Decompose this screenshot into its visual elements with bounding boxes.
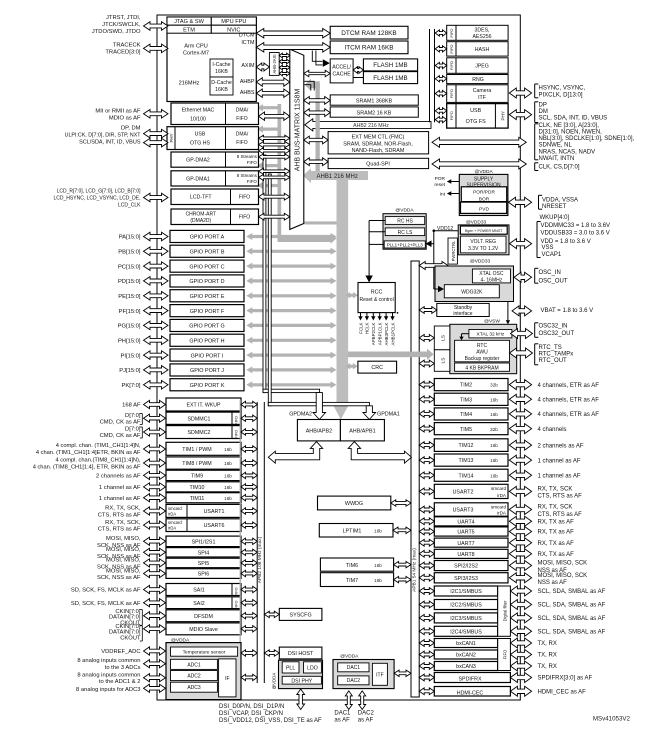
svg-text:XTAL OSC: XTAL OSC	[479, 271, 504, 277]
svg-text:ETM: ETM	[183, 27, 195, 33]
svg-text:GPIO PORT F: GPIO PORT F	[190, 309, 225, 315]
svg-text:JTRST, JTDI,: JTRST, JTDI,	[106, 15, 141, 21]
svg-text:CKOUT: CKOUT	[120, 635, 141, 641]
svg-text:16b: 16b	[224, 485, 232, 490]
svg-text:SDMMC1: SDMMC1	[188, 416, 211, 422]
svg-text:irDA: irDA	[497, 493, 507, 498]
svg-text:I2C1/SMBUS: I2C1/SMBUS	[450, 589, 482, 595]
svg-text:FIFO: FIFO	[503, 649, 508, 659]
svg-text:UART4: UART4	[457, 519, 474, 525]
svg-text:NBL[3:0], SDCLKE[1:0], SDNE[1:: NBL[3:0], SDCLKE[1:0], SDNE[1:0],	[539, 136, 635, 142]
svg-text:D[31:0], NOEN, NWEN,: D[31:0], NOEN, NWEN,	[539, 130, 603, 136]
svg-text:HCLK: HCLK	[365, 322, 370, 334]
svg-text:CMD, CK as AF: CMD, CK as AF	[100, 420, 141, 426]
svg-text:FIFO: FIFO	[449, 111, 454, 120]
svg-text:4 compl. chan. (TIM1_CH1[1:4]N: 4 compl. chan. (TIM1_CH1[1:4]N,	[56, 443, 141, 449]
svg-text:RX, TX, SCK: RX, TX, SCK	[538, 505, 573, 511]
svg-text:ADC2: ADC2	[187, 674, 201, 680]
svg-text:168 AF: 168 AF	[122, 403, 141, 409]
svg-text:SCL/SDA, INT, ID, VBUS: SCL/SDA, INT, ID, VBUS	[79, 140, 141, 146]
svg-text:SUPPLY: SUPPLY	[474, 177, 494, 183]
svg-text:DTCM: DTCM	[239, 33, 255, 39]
svg-text:ADC1: ADC1	[187, 662, 201, 668]
svg-text:SD, SCK, FS, MCLK as AF: SD, SCK, FS, MCLK as AF	[71, 588, 141, 594]
svg-text:SPI6: SPI6	[198, 572, 210, 578]
svg-text:Int: Int	[440, 192, 446, 198]
svg-text:RX, TX as AF: RX, TX as AF	[538, 520, 575, 526]
svg-text:1 channel as AF: 1 channel as AF	[99, 485, 141, 491]
svg-text:DAC2: DAC2	[358, 711, 375, 717]
svg-text:GPDMA1: GPDMA1	[377, 412, 400, 418]
svg-text:MOSI, MISO,: MOSI, MISO,	[106, 558, 141, 564]
svg-text:SCL, SDA, SMBAL as AF: SCL, SDA, SMBAL as AF	[538, 603, 606, 609]
svg-text:LCD_R[7:0], LCD_G[7:0], LCD_B[: LCD_R[7:0], LCD_G[7:0], LCD_B[7:0]	[57, 189, 142, 195]
svg-text:APB2 108 MHz (max): APB2 108 MHz (max)	[257, 536, 263, 583]
svg-text:32b: 32b	[490, 383, 498, 388]
svg-text:to the ADC1 & 2: to the ADC1 & 2	[99, 679, 141, 685]
svg-text:SPDIFRX: SPDIFRX	[459, 677, 482, 683]
svg-text:DAC1: DAC1	[347, 665, 361, 671]
svg-text:LCD_HSYNC, LCD_VSYNC, LCD_DE,: LCD_HSYNC, LCD_VSYNC, LCD_DE,	[54, 196, 141, 202]
svg-text:1 channel as AF: 1 channel as AF	[99, 496, 141, 502]
svg-text:AXIM: AXIM	[241, 63, 255, 69]
svg-text:16b: 16b	[224, 461, 232, 466]
svg-text:RNG: RNG	[472, 77, 484, 83]
svg-text:ADC3: ADC3	[187, 685, 201, 691]
svg-text:CTS, RTS as AF: CTS, RTS as AF	[98, 527, 141, 533]
svg-text:GPIO PORT J: GPIO PORT J	[190, 368, 224, 374]
svg-text:I2C2/SMBUS: I2C2/SMBUS	[450, 603, 482, 609]
svg-text:RX, TX, SCK,: RX, TX, SCK,	[105, 506, 141, 512]
svg-text:smcard: smcard	[168, 520, 182, 525]
svg-text:Temperature sensor: Temperature sensor	[183, 650, 226, 656]
svg-text:ITF: ITF	[478, 95, 486, 101]
svg-text:TIM8 / PWM: TIM8 / PWM	[182, 461, 211, 467]
svg-text:8 Streams: 8 Streams	[237, 173, 258, 178]
svg-text:CMD, CK as AF: CMD, CK as AF	[100, 433, 141, 439]
svg-text:GPIO PORT A: GPIO PORT A	[190, 235, 225, 241]
svg-text:FIFO: FIFO	[239, 195, 250, 201]
svg-text:VOLT. REG: VOLT. REG	[470, 239, 496, 245]
svg-text:smcard: smcard	[491, 486, 507, 491]
svg-text:bxCAN2: bxCAN2	[456, 653, 476, 659]
svg-text:16b: 16b	[374, 578, 382, 583]
svg-text:216MHz: 216MHz	[179, 81, 200, 87]
svg-text:FLASH 1MB: FLASH 1MB	[373, 62, 407, 69]
svg-text:FIFO: FIFO	[247, 179, 258, 184]
svg-text:SCL, SDA, INT, ID, VBUS: SCL, SDA, INT, ID, VBUS	[539, 115, 608, 121]
svg-text:SRAM2 16 KB: SRAM2 16 KB	[357, 110, 392, 116]
svg-text:PJ[15:0]: PJ[15:0]	[119, 368, 141, 374]
svg-text:VDDUSB33 = 3.0 to 3.6 V: VDDUSB33 = 3.0 to 3.6 V	[541, 231, 610, 237]
svg-text:4- 16MHz: 4- 16MHz	[481, 277, 503, 283]
svg-text:VSS: VSS	[542, 245, 554, 251]
svg-text:AHB/APB1: AHB/APB1	[349, 429, 375, 435]
svg-text:SAI2: SAI2	[193, 601, 205, 607]
svg-text:RC HS: RC HS	[397, 219, 413, 225]
svg-text:EXT IT. WKUP: EXT IT. WKUP	[187, 403, 221, 409]
svg-text:XTAL 32 kHz: XTAL 32 kHz	[477, 332, 505, 338]
svg-text:VDDREF_ADC: VDDREF_ADC	[101, 649, 140, 655]
svg-text:PF[15:0]: PF[15:0]	[119, 309, 141, 315]
svg-text:AHBP: AHBP	[240, 79, 255, 85]
svg-text:PLL1+PLL2+PLL3: PLL1+PLL2+PLL3	[387, 242, 423, 247]
svg-text:MDIO Slave: MDIO Slave	[189, 627, 218, 633]
svg-text:PHY: PHY	[501, 111, 506, 120]
svg-text:16b: 16b	[374, 563, 382, 568]
svg-text:USART6: USART6	[204, 523, 225, 529]
svg-text:TIM13: TIM13	[458, 458, 473, 464]
svg-text:MOSI, MISO,: MOSI, MISO,	[106, 547, 141, 553]
svg-text:CLK, NE [3:0], A[23:0],: CLK, NE [3:0], A[23:0],	[539, 123, 600, 129]
svg-text:16KB: 16KB	[215, 87, 228, 93]
svg-text:CTS, RTS as AF: CTS, RTS as AF	[98, 512, 141, 518]
svg-text:MOSI, MISO,: MOSI, MISO,	[106, 536, 141, 542]
svg-text:CLK, CS,D[7:0]: CLK, CS,D[7:0]	[539, 164, 580, 170]
svg-text:4 KB BKPRAM: 4 KB BKPRAM	[465, 365, 498, 371]
svg-text:LS: LS	[441, 358, 447, 364]
svg-text:TIM7: TIM7	[346, 578, 358, 584]
svg-text:AHB1PCLK: AHB1PCLK	[390, 322, 395, 345]
svg-text:16b: 16b	[490, 412, 498, 417]
svg-text:DSI_VCAP, DSI_CKP/N: DSI_VCAP, DSI_CKP/N	[219, 711, 283, 717]
svg-text:reset: reset	[434, 182, 445, 188]
svg-text:Backup register: Backup register	[465, 356, 500, 362]
svg-text:FIFO: FIFO	[236, 140, 247, 146]
svg-text:FIFO: FIFO	[235, 416, 239, 425]
svg-text:TX, RX: TX, RX	[538, 664, 557, 670]
svg-text:EXT MEM CTL (FMC): EXT MEM CTL (FMC)	[352, 135, 405, 141]
svg-text:ITF: ITF	[376, 673, 384, 679]
svg-text:SPI5: SPI5	[198, 561, 210, 567]
svg-text:SDNWE, NL: SDNWE, NL	[539, 143, 573, 149]
svg-text:LCD_CLK: LCD_CLK	[118, 203, 141, 209]
svg-text:APBP1CLK: APBP1CLK	[378, 322, 383, 345]
svg-text:PH[15:0]: PH[15:0]	[118, 339, 141, 345]
svg-text:RTC: RTC	[477, 343, 488, 349]
svg-text:16b: 16b	[490, 458, 498, 463]
svg-text:4 chan. (TIM8_CH1[1:4], ETR, B: 4 chan. (TIM8_CH1[1:4], ETR, BKIN as AF	[33, 464, 141, 470]
svg-text:GPIO PORT B: GPIO PORT B	[190, 250, 225, 256]
svg-text:1 channel as AF: 1 channel as AF	[538, 473, 581, 479]
svg-text:NWAIT, INTN: NWAIT, INTN	[539, 156, 575, 162]
svg-text:@VDD33: @VDD33	[470, 258, 491, 264]
svg-text:smcard: smcard	[491, 504, 507, 509]
svg-text:NSS as AF: NSS as AF	[538, 580, 568, 586]
svg-text:MSv41053V2: MSv41053V2	[593, 716, 631, 723]
svg-text:LPTIM1: LPTIM1	[343, 529, 362, 535]
svg-text:TIM4: TIM4	[460, 412, 472, 418]
svg-text:JTCK/SWCLK,: JTCK/SWCLK,	[102, 22, 141, 28]
svg-text:FIFO: FIFO	[235, 587, 239, 596]
svg-text:SCK, NSS as AF: SCK, NSS as AF	[97, 575, 141, 581]
svg-text:MDIO as AF: MDIO as AF	[109, 116, 141, 122]
svg-text:4 channels, ETR as AF: 4 channels, ETR as AF	[538, 398, 600, 404]
svg-text:MOSI, MISO,: MOSI, MISO,	[106, 568, 141, 574]
svg-text:bxCAN3: bxCAN3	[456, 664, 476, 670]
svg-text:WDG32K: WDG32K	[461, 290, 483, 296]
svg-text:TIM14: TIM14	[458, 473, 473, 479]
svg-text:irDA: irDA	[497, 511, 507, 516]
svg-text:RCC: RCC	[371, 290, 383, 296]
svg-text:DP, DM: DP, DM	[121, 126, 141, 132]
svg-text:APBP2CLK: APBP2CLK	[371, 322, 376, 345]
svg-text:LCD-TFT: LCD-TFT	[190, 195, 212, 201]
svg-text:FIFO: FIFO	[235, 601, 239, 610]
svg-text:GPIO PORT C: GPIO PORT C	[189, 264, 224, 270]
svg-text:Reset & control: Reset & control	[360, 297, 394, 303]
svg-text:FIFO: FIFO	[239, 215, 250, 221]
svg-text:DM: DM	[539, 109, 548, 115]
svg-text:SPDIFRX[3:0] as AF: SPDIFRX[3:0] as AF	[538, 676, 593, 682]
svg-text:DSI_VDD12, DSI_VSS, DSI_TE as: DSI_VDD12, DSI_VSS, DSI_TE as AF	[219, 718, 322, 724]
svg-text:16b: 16b	[374, 529, 382, 534]
svg-text:HSYNC, VSYNC,: HSYNC, VSYNC,	[539, 86, 586, 92]
svg-text:@VDDA: @VDDA	[272, 673, 277, 690]
svg-text:SRAM, SDRAM, NOR-Flash,: SRAM, SDRAM, NOR-Flash,	[343, 141, 413, 147]
svg-text:RC LS: RC LS	[398, 230, 413, 236]
svg-text:HASH: HASH	[475, 47, 490, 53]
svg-text:16b: 16b	[490, 443, 498, 448]
svg-text:GPDMA2: GPDMA2	[289, 412, 312, 418]
svg-text:USB: USB	[195, 132, 206, 138]
svg-text:SD, SCK, FS, MCLK as AF: SD, SCK, FS, MCLK as AF	[71, 601, 141, 607]
svg-text:Camera: Camera	[473, 88, 492, 94]
svg-text:FIFO: FIFO	[235, 430, 239, 439]
svg-text:@VSW: @VSW	[484, 318, 500, 324]
svg-text:UART7: UART7	[457, 541, 474, 547]
svg-text:4 compl. chan.(TIM8_CH1[1:4]N): 4 compl. chan.(TIM8_CH1[1:4]N),	[55, 457, 140, 463]
svg-text:TX, RX: TX, RX	[538, 641, 557, 647]
svg-text:PHY: PHY	[169, 133, 174, 142]
svg-text:3.3V TO 1.2V: 3.3V TO 1.2V	[468, 246, 499, 252]
svg-text:FCLK: FCLK	[358, 322, 363, 333]
svg-text:ITCM RAM 16KB: ITCM RAM 16KB	[344, 45, 393, 52]
svg-text:8 analog inputs common: 8 analog inputs common	[77, 672, 140, 678]
svg-text:USART2: USART2	[453, 490, 474, 496]
svg-text:AHB3PCLK: AHB3PCLK	[384, 322, 389, 345]
svg-text:PK[7:0]: PK[7:0]	[121, 383, 140, 389]
svg-text:CTS, RTS as AF: CTS, RTS as AF	[538, 512, 583, 518]
svg-text:OSC32_OUT: OSC32_OUT	[539, 331, 575, 337]
svg-text:PD[15:0]: PD[15:0]	[118, 279, 141, 285]
svg-text:RTC_OUT: RTC_OUT	[539, 358, 568, 364]
svg-text:VBAT = 1.8 to 3.6 V: VBAT = 1.8 to 3.6 V	[541, 308, 594, 314]
svg-text:DAC2: DAC2	[347, 678, 361, 684]
svg-text:1 channel as AF: 1 channel as AF	[538, 458, 581, 464]
svg-text:2 channels as AF: 2 channels as AF	[96, 474, 141, 480]
svg-text:32b: 32b	[490, 427, 498, 432]
svg-text:TIM3: TIM3	[460, 397, 472, 403]
svg-text:OSC32_IN: OSC32_IN	[539, 323, 568, 329]
svg-text:SCL, SDA, SMBAL as AF: SCL, SDA, SMBAL as AF	[538, 589, 606, 595]
svg-text:SPI3/I2S3: SPI3/I2S3	[454, 576, 478, 582]
svg-text:(DMA2D): (DMA2D)	[190, 218, 211, 224]
svg-text:DFSDM: DFSDM	[194, 614, 213, 620]
svg-text:AES256: AES256	[472, 34, 491, 40]
svg-text:WWDG: WWDG	[345, 501, 363, 507]
svg-text:8 analog inputs for ADC3: 8 analog inputs for ADC3	[76, 687, 140, 693]
svg-text:MOSI, MISO, SCK: MOSI, MISO, SCK	[538, 573, 588, 579]
svg-text:CACHE: CACHE	[333, 72, 352, 78]
svg-text:GP-DMA2: GP-DMA2	[186, 158, 210, 164]
svg-text:PI[15:0]: PI[15:0]	[121, 353, 141, 359]
svg-text:OTG FS: OTG FS	[466, 119, 486, 125]
svg-text:JPEG: JPEG	[475, 64, 489, 70]
svg-text:RX, TX, SCK,: RX, TX, SCK,	[105, 520, 141, 526]
svg-text:irDA: irDA	[168, 526, 176, 531]
svg-text:IF: IF	[225, 676, 229, 682]
svg-text:16b: 16b	[224, 447, 232, 452]
svg-text:TIM9: TIM9	[191, 474, 203, 480]
svg-text:Ethernet MAC: Ethernet MAC	[182, 108, 215, 114]
svg-text:JTDO/SWD, JTDO: JTDO/SWD, JTDO	[92, 29, 141, 35]
svg-text:8 Streams: 8 Streams	[237, 154, 258, 159]
svg-text:AHB2 216 MHz: AHB2 216 MHz	[353, 123, 389, 129]
svg-text:NAND-Flash, SDRAM: NAND-Flash, SDRAM	[352, 148, 405, 154]
svg-text:DSI_D0P/N, DSI_D1P/N: DSI_D0P/N, DSI_D1P/N	[219, 704, 284, 710]
svg-text:DSI PHY: DSI PHY	[291, 678, 312, 684]
svg-text:VDDA, VSSA: VDDA, VSSA	[542, 198, 578, 204]
svg-text:VCAP1: VCAP1	[542, 252, 562, 258]
svg-text:D[7:0]: D[7:0]	[125, 426, 141, 432]
svg-text:APB1 54 MHz (max): APB1 54 MHz (max)	[412, 548, 418, 592]
svg-text:4 channels, ETR as AF: 4 channels, ETR as AF	[538, 383, 600, 389]
svg-text:GPIO PORT K: GPIO PORT K	[190, 383, 225, 389]
svg-text:Arm CPU: Arm CPU	[184, 44, 208, 50]
svg-text:16KB: 16KB	[215, 69, 228, 75]
svg-text:LDO: LDO	[307, 666, 318, 672]
svg-text:PWRCTRL: PWRCTRL	[451, 240, 456, 261]
svg-text:MII or RMII as AF: MII or RMII as AF	[95, 109, 141, 115]
svg-text:PLL: PLL	[286, 666, 295, 672]
svg-text:TIM11: TIM11	[190, 496, 205, 502]
svg-text:FIFO: FIFO	[236, 116, 247, 122]
svg-text:ULPI:CK, D[7:0], DIR, STP, NXT: ULPI:CK, D[7:0], DIR, STP, NXT	[65, 133, 142, 139]
svg-text:TRACED[3:0]: TRACED[3:0]	[105, 50, 141, 56]
svg-text:to the 3 ADCs: to the 3 ADCs	[105, 665, 141, 671]
svg-text:as AF: as AF	[334, 718, 350, 724]
svg-text:2 channels as AF: 2 channels as AF	[538, 443, 584, 449]
svg-text:AHB1 216 MHz: AHB1 216 MHz	[317, 174, 358, 180]
svg-text:4 channels: 4 channels	[538, 427, 567, 433]
svg-text:smcard: smcard	[168, 506, 182, 511]
svg-text:RX, TX as AF: RX, TX as AF	[538, 541, 575, 547]
svg-text:TIM12: TIM12	[458, 443, 473, 449]
svg-text:SCL, SDA, SMBAL as AF: SCL, SDA, SMBAL as AF	[538, 616, 606, 622]
svg-text:SCL, SDA, SMBAL as AF: SCL, SDA, SMBAL as AF	[538, 630, 606, 636]
svg-text:4 channels, ETR as AF: 4 channels, ETR as AF	[538, 412, 600, 418]
svg-text:DSI HOST: DSI HOST	[288, 651, 314, 657]
svg-text:bxCAN1: bxCAN1	[456, 641, 476, 647]
svg-text:SYSCFG: SYSCFG	[290, 613, 312, 619]
svg-text:16b: 16b	[224, 474, 232, 479]
svg-text:FLASH 1MB: FLASH 1MB	[373, 75, 407, 82]
svg-text:3DES,: 3DES,	[475, 28, 490, 34]
svg-text:16b: 16b	[224, 496, 232, 501]
svg-text:LS: LS	[441, 335, 447, 341]
svg-text:MOSI, MISO, SCK: MOSI, MISO, SCK	[538, 561, 588, 567]
svg-text:interface: interface	[453, 311, 472, 317]
svg-text:RX, TX as AF: RX, TX as AF	[538, 530, 575, 536]
svg-text:16b: 16b	[490, 397, 498, 402]
svg-text:RX, TX as AF: RX, TX as AF	[538, 552, 575, 558]
svg-text:SPI4: SPI4	[198, 550, 210, 556]
svg-text:@VDDA: @VDDA	[395, 208, 414, 214]
svg-text:PE[15:0]: PE[15:0]	[118, 294, 141, 300]
svg-text:GPIO PORT E: GPIO PORT E	[190, 294, 225, 300]
svg-text:10/100: 10/100	[190, 117, 206, 123]
svg-text:I-Cache: I-Cache	[212, 62, 230, 68]
svg-text:AHBS: AHBS	[240, 90, 255, 96]
svg-text:SPI2/I2S2: SPI2/I2S2	[454, 564, 478, 570]
svg-text:OSC_OUT: OSC_OUT	[539, 278, 568, 284]
svg-text:POR: POR	[435, 176, 446, 182]
svg-text:D[7:0]: D[7:0]	[125, 413, 141, 419]
svg-text:GPIO PORT D: GPIO PORT D	[189, 279, 224, 285]
svg-text:UART5: UART5	[457, 530, 474, 536]
svg-text:FIFO: FIFO	[449, 28, 454, 37]
svg-text:TIM6: TIM6	[346, 563, 358, 569]
svg-text:@VDDA: @VDDA	[340, 653, 359, 659]
svg-text:DTCM RAM 128KB: DTCM RAM 128KB	[341, 30, 396, 37]
svg-text:PA[15:0]: PA[15:0]	[119, 235, 141, 241]
svg-text:POR/PDR: POR/PDR	[473, 190, 495, 196]
svg-text:DMA/: DMA/	[236, 132, 249, 138]
svg-text:Cortex-M7: Cortex-M7	[183, 51, 209, 57]
svg-text:FIFO: FIFO	[449, 61, 454, 70]
svg-text:TRACECK: TRACECK	[113, 43, 141, 49]
svg-text:UART8: UART8	[457, 552, 474, 558]
svg-text:ACCEL/: ACCEL/	[332, 65, 351, 71]
svg-text:USART3: USART3	[453, 508, 474, 514]
svg-text:DMA/: DMA/	[236, 108, 249, 114]
svg-text:Standby: Standby	[454, 305, 473, 311]
svg-text:TIM2: TIM2	[460, 383, 472, 389]
svg-text:SAI1: SAI1	[193, 588, 205, 594]
svg-text:OSC_IN: OSC_IN	[539, 270, 561, 276]
svg-text:VDD = 1.8 to 3.6 V: VDD = 1.8 to 3.6 V	[541, 239, 591, 245]
svg-text:RTC_TS: RTC_TS	[539, 345, 562, 351]
svg-text:PIXCLK, D[13:0]: PIXCLK, D[13:0]	[539, 93, 583, 99]
svg-text:DP: DP	[539, 103, 547, 109]
svg-text:D-Cache: D-Cache	[211, 80, 232, 86]
svg-text:SDMMC2: SDMMC2	[188, 430, 211, 436]
svg-text:GPIO PORT G: GPIO PORT G	[189, 324, 224, 330]
svg-text:ICTM: ICTM	[241, 40, 255, 46]
svg-text:PG[15:0]: PG[15:0]	[118, 324, 141, 330]
svg-text:DAC1: DAC1	[334, 711, 351, 717]
svg-text:PB[15:0]: PB[15:0]	[118, 250, 141, 256]
svg-text:FIFO: FIFO	[247, 160, 258, 165]
svg-text:RX, TX, SCK: RX, TX, SCK	[538, 487, 573, 493]
svg-text:OTG HS: OTG HS	[190, 141, 210, 147]
svg-text:AHB/APB2: AHB/APB2	[306, 429, 332, 435]
svg-text:TIM1 / PWM: TIM1 / PWM	[182, 447, 211, 453]
svg-text:AHB-2AXI: AHB-2AXI	[272, 54, 277, 73]
svg-text:TIM5: TIM5	[460, 427, 472, 433]
svg-text:CHROM-ART: CHROM-ART	[186, 212, 216, 218]
svg-text:8 analog inputs common: 8 analog inputs common	[77, 658, 140, 664]
svg-text:GP-DMA1: GP-DMA1	[186, 176, 210, 182]
svg-text:I2C4/SMBUS: I2C4/SMBUS	[450, 629, 482, 635]
svg-text:Bgen + POWER MNGT: Bgen + POWER MNGT	[465, 229, 503, 233]
svg-text:FIFO: FIFO	[449, 89, 454, 98]
svg-text:as AF: as AF	[358, 718, 374, 724]
svg-text:CTS, RTS as AF: CTS, RTS as AF	[538, 494, 583, 500]
svg-text:4 chan. (TIM1_CH1[1:4]ETR, BKI: 4 chan. (TIM1_CH1[1:4]ETR, BKIN as AF	[36, 450, 141, 456]
svg-text:USART1: USART1	[204, 509, 225, 515]
